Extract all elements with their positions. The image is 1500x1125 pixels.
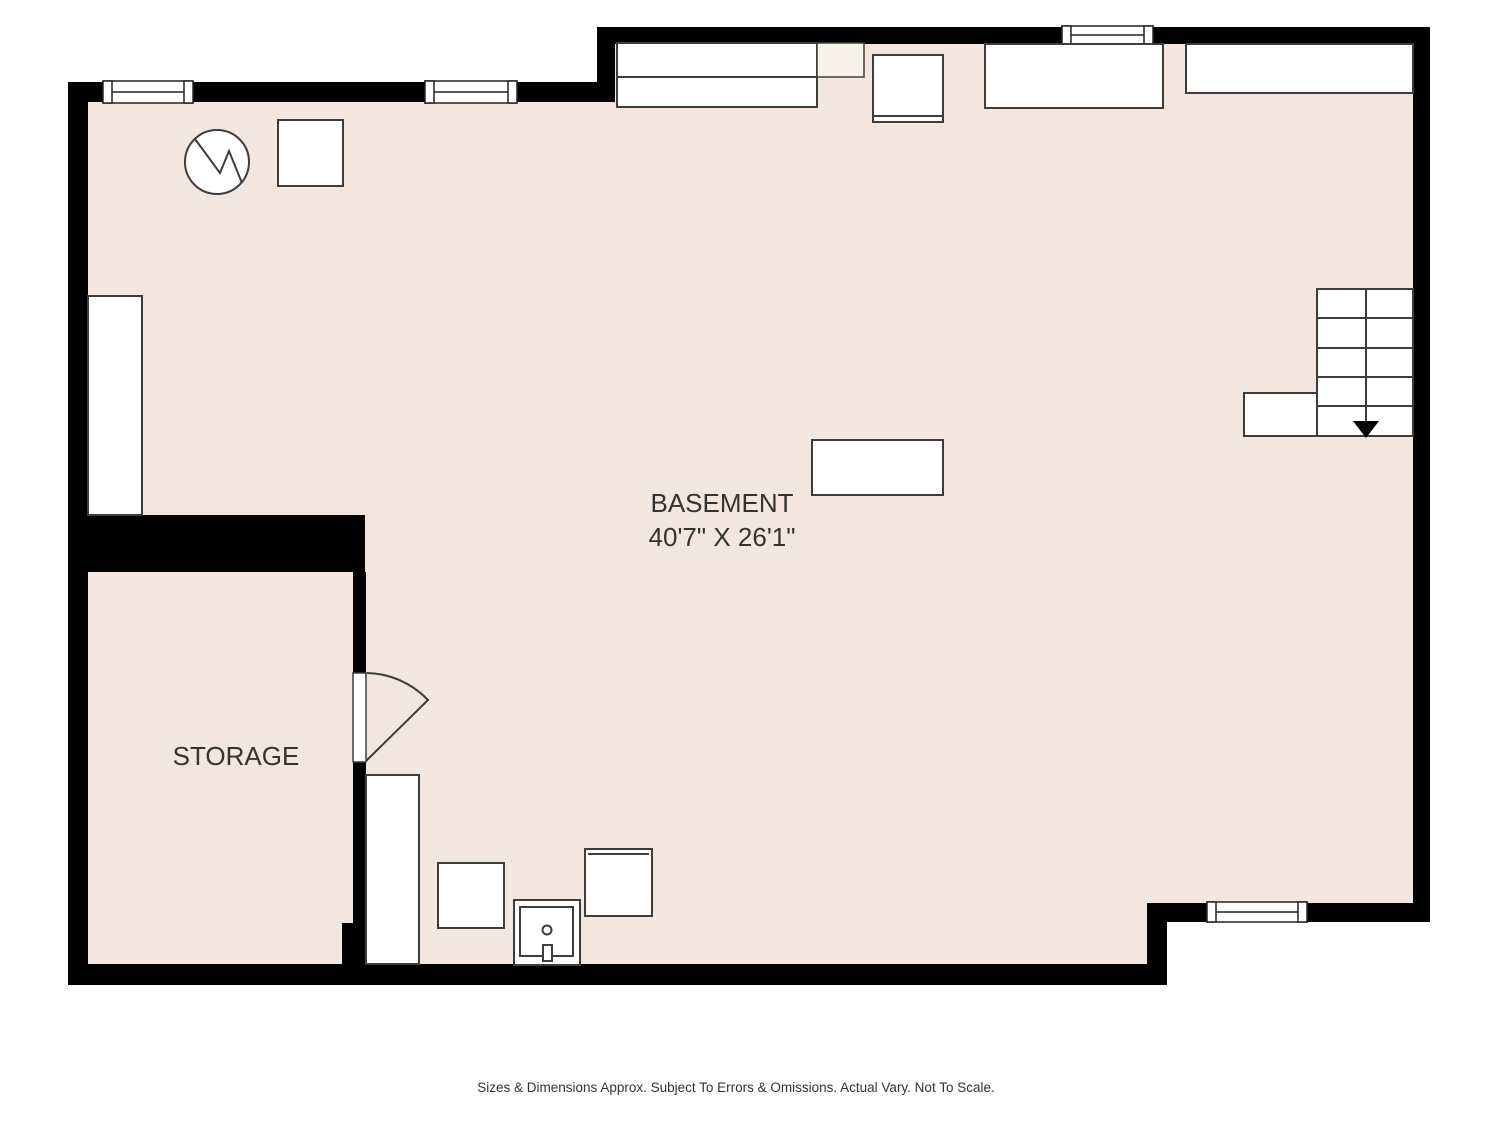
table: [812, 440, 943, 495]
sink-faucet-icon: [543, 945, 552, 961]
storage-room-label: STORAGE: [173, 741, 300, 771]
wall-bottom: [68, 964, 1167, 985]
window-top-3: [1062, 26, 1153, 45]
wall-right: [1413, 27, 1430, 922]
window-top-1: [103, 81, 193, 103]
wall-top-right: [597, 27, 1430, 44]
cabinet-top-right-1: [985, 44, 1163, 108]
wall-storage-east-notch: [342, 923, 366, 964]
wall-shelf-left: [88, 296, 142, 515]
window-jamb: [1144, 26, 1153, 45]
dryer-body: [585, 849, 652, 916]
washer-appliance: [873, 55, 943, 122]
window-jamb: [103, 81, 112, 103]
stair-landing: [1244, 393, 1317, 436]
utility-square-bottom-1: [438, 863, 504, 928]
window-jamb: [1207, 902, 1216, 922]
window-bottom-right: [1207, 902, 1307, 922]
wall-storage-east-upper: [353, 572, 366, 673]
window-jamb: [184, 81, 193, 103]
window-jamb: [508, 81, 517, 103]
laundry-sink: [514, 900, 580, 965]
window-jamb: [1062, 26, 1071, 45]
counter-body: [617, 43, 817, 107]
window-jamb: [1298, 902, 1307, 922]
storage-shelf-tall: [366, 775, 419, 964]
dryer-appliance: [585, 849, 652, 916]
basement-room-dimensions: 40'7" X 26'1": [649, 522, 796, 552]
window-jamb: [425, 81, 434, 103]
door-panel: [353, 673, 366, 762]
cabinet-top-right-2: [1186, 44, 1413, 93]
counter-accent: [817, 43, 864, 77]
basement-room-label: BASEMENT: [650, 488, 793, 518]
window-top-2: [425, 81, 517, 103]
disclaimer-text: Sizes & Dimensions Approx. Subject To Er…: [477, 1080, 994, 1095]
basement-floor-plan: BASEMENT 40'7" X 26'1" STORAGE Sizes & D…: [0, 0, 1500, 1125]
wall-storage-north: [68, 515, 365, 572]
floor-plan-canvas: BASEMENT 40'7" X 26'1" STORAGE Sizes & D…: [0, 0, 1500, 1125]
washer-body: [873, 55, 943, 122]
utility-square-top-left: [278, 120, 343, 186]
water-heater-icon: [185, 130, 249, 194]
